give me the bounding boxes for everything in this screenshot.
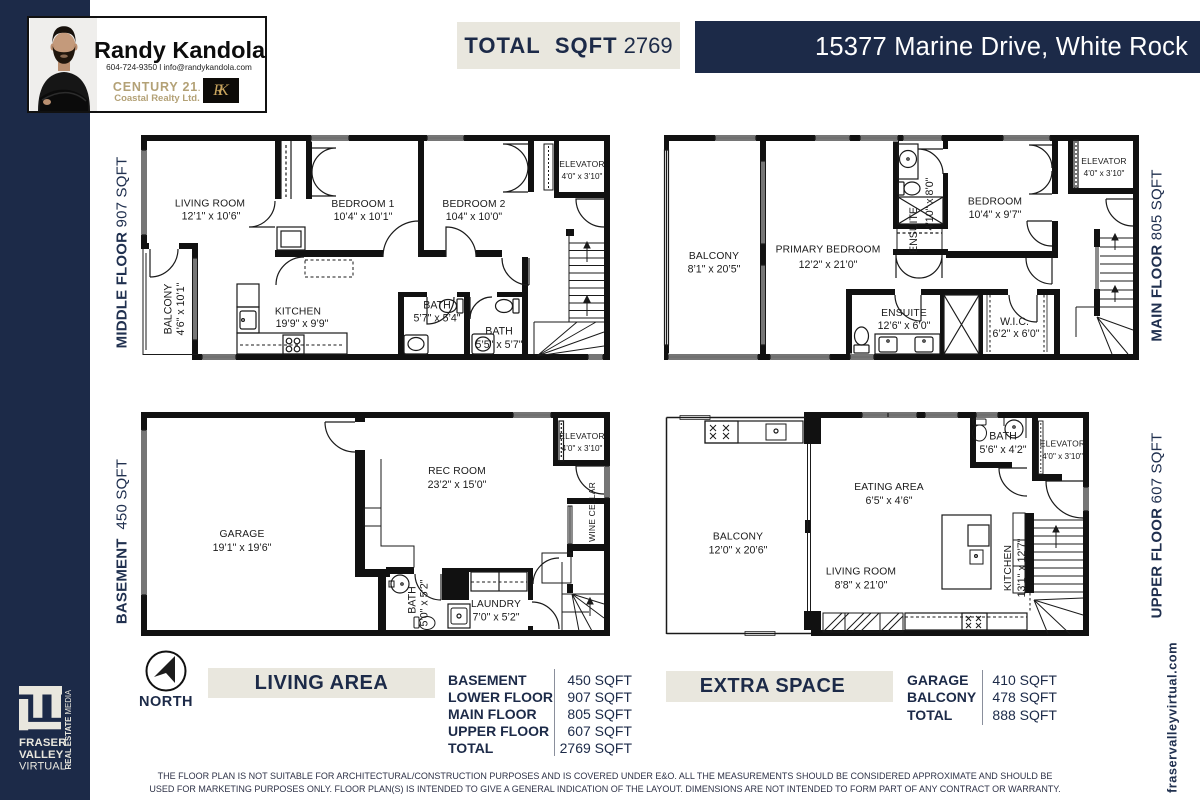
svg-text:VALLEY: VALLEY	[19, 749, 64, 761]
svg-text:23’2" x 15’0": 23’2" x 15’0"	[428, 479, 487, 491]
svg-text:13’1" x 12’7": 13’1" x 12’7"	[1016, 538, 1028, 597]
svg-text:BATH: BATH	[407, 586, 419, 613]
svg-text:12’2" x 21’0": 12’2" x 21’0"	[799, 259, 858, 271]
svg-text:VIRTUAL: VIRTUAL	[19, 761, 66, 773]
svg-text:10’4" x 9’7": 10’4" x 9’7"	[969, 209, 1022, 221]
svg-text:GARAGE: GARAGE	[220, 529, 265, 540]
svg-text:NORTH: NORTH	[139, 694, 193, 710]
svg-text:BEDROOM 2: BEDROOM 2	[442, 199, 505, 210]
svg-text:5’0" x 5’2": 5’0" x 5’2"	[419, 579, 431, 626]
svg-text:10’4" x 10’1": 10’4" x 10’1"	[334, 211, 393, 223]
svg-text:WINE CELLAR: WINE CELLAR	[587, 482, 597, 542]
svg-text:5’5" x 5’7": 5’5" x 5’7"	[476, 339, 523, 351]
svg-text:ELEVATOR: ELEVATOR	[1040, 439, 1086, 449]
svg-text:19’9" x 9’9": 19’9" x 9’9"	[276, 318, 329, 330]
svg-text:EATING AREA: EATING AREA	[854, 482, 924, 493]
svg-text:104" x 10’0": 104" x 10’0"	[446, 211, 503, 223]
svg-text:REAL ESTATE MEDIA: REAL ESTATE MEDIA	[64, 689, 73, 770]
svg-text:ENSUITE: ENSUITE	[908, 207, 920, 253]
svg-text:KITCHEN: KITCHEN	[1003, 545, 1014, 591]
svg-text:4’0" x 3’10": 4’0" x 3’10"	[1084, 169, 1125, 178]
svg-text:12’1" x 10’6": 12’1" x 10’6"	[182, 211, 241, 223]
svg-text:PRIMARY BEDROOM: PRIMARY BEDROOM	[776, 245, 881, 256]
svg-text:ENSUITE: ENSUITE	[881, 308, 927, 319]
svg-text:BATH: BATH	[485, 326, 512, 338]
svg-text:7’0" x 5’2": 7’0" x 5’2"	[473, 612, 520, 624]
svg-text:BALCONY: BALCONY	[689, 251, 739, 262]
svg-text:8’8" x 21’0": 8’8" x 21’0"	[835, 580, 888, 592]
svg-text:BALCONY: BALCONY	[163, 284, 175, 335]
svg-text:6’2" x 6’0": 6’2" x 6’0"	[993, 328, 1040, 340]
svg-text:4’0" x 3’10": 4’0" x 3’10"	[1042, 452, 1083, 461]
svg-text:LIVING ROOM: LIVING ROOM	[175, 199, 245, 210]
svg-text:5’6" x 4’2": 5’6" x 4’2"	[980, 444, 1027, 456]
svg-text:BATH: BATH	[423, 300, 450, 312]
svg-text:12’0" x 20’6": 12’0" x 20’6"	[709, 545, 768, 557]
svg-text:4’0" x 3’10": 4’0" x 3’10"	[562, 444, 603, 453]
svg-text:BALCONY: BALCONY	[713, 532, 763, 543]
svg-text:ELEVATOR: ELEVATOR	[559, 431, 605, 441]
svg-text:FRASER: FRASER	[19, 737, 67, 749]
svg-text:LIVING ROOM: LIVING ROOM	[826, 567, 896, 578]
svg-text:BEDROOM 1: BEDROOM 1	[331, 199, 394, 210]
svg-text:12’6" x 6’0": 12’6" x 6’0"	[878, 320, 931, 332]
svg-text:4’6" x 10’1": 4’6" x 10’1"	[175, 282, 187, 335]
svg-text:W.I.C.: W.I.C.	[1000, 316, 1029, 328]
svg-text:BEDROOM: BEDROOM	[968, 197, 1022, 208]
svg-text:5’7" x 5’4": 5’7" x 5’4"	[414, 313, 461, 325]
svg-text:ELEVATOR: ELEVATOR	[1081, 156, 1127, 166]
svg-text:4’10" x 8’0": 4’10" x 8’0"	[924, 177, 936, 230]
svg-text:KITCHEN: KITCHEN	[275, 307, 321, 318]
svg-text:LAUNDRY: LAUNDRY	[471, 599, 521, 610]
svg-text:8’1" x 20’5": 8’1" x 20’5"	[688, 264, 741, 276]
svg-text:ELEVATOR: ELEVATOR	[559, 159, 605, 169]
svg-text:4’0" x 3’10": 4’0" x 3’10"	[562, 172, 603, 181]
svg-text:BATH: BATH	[989, 431, 1016, 443]
svg-text:REC ROOM: REC ROOM	[428, 466, 486, 477]
svg-text:19’1" x 19’6": 19’1" x 19’6"	[213, 542, 272, 554]
svg-text:6’5" x 4’6": 6’5" x 4’6"	[866, 495, 913, 507]
